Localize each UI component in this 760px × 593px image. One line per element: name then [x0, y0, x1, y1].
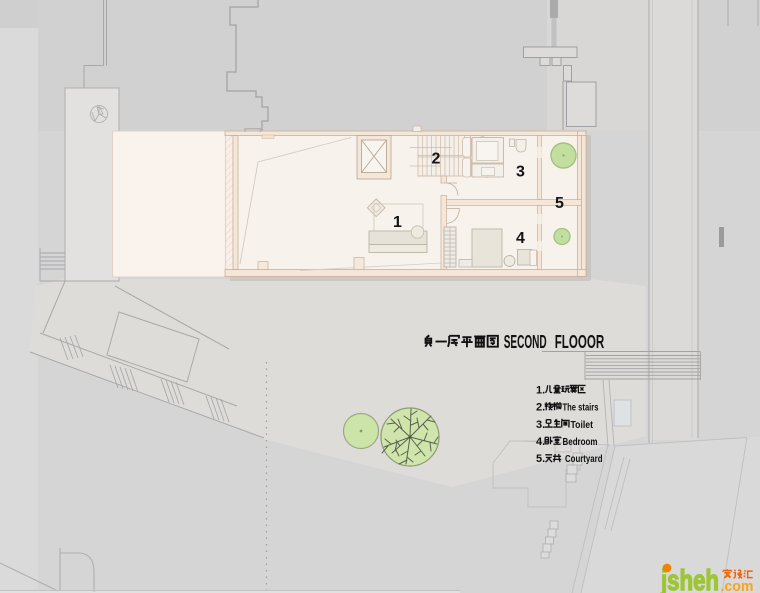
svg-text:1: 1 — [393, 214, 402, 231]
svg-text:Courtyard: Courtyard — [565, 453, 603, 465]
svg-text:4: 4 — [516, 230, 525, 247]
svg-text:5: 5 — [555, 195, 564, 212]
svg-text:4.: 4. — [536, 436, 545, 448]
svg-text:1.: 1. — [536, 384, 545, 396]
svg-text:2: 2 — [432, 151, 441, 168]
svg-text:.com: .com — [721, 579, 754, 593]
svg-text:SECOND: SECOND — [504, 332, 547, 352]
svg-text:3: 3 — [516, 164, 525, 181]
svg-text:Toilet: Toilet — [571, 419, 594, 431]
svg-text:3.: 3. — [536, 419, 545, 431]
svg-text:2.: 2. — [536, 402, 545, 414]
svg-text:5.: 5. — [536, 453, 545, 465]
svg-text:The stairs: The stairs — [563, 402, 599, 414]
svg-text:FLOOOR: FLOOOR — [555, 332, 605, 352]
svg-text:Bedroom: Bedroom — [563, 436, 598, 448]
